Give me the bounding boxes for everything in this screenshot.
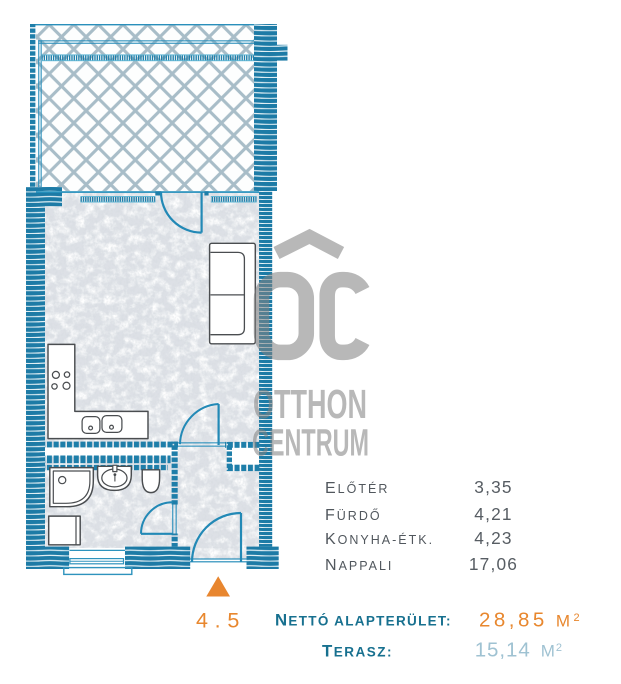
svg-text:28,85M2: 28,85M2 (479, 609, 583, 632)
svg-text:4,23: 4,23 (474, 528, 512, 548)
svg-text:17,06: 17,06 (469, 554, 518, 574)
svg-text:TERASZ:: TERASZ: (322, 642, 393, 661)
svg-text:NETTÓ ALAPTERÜLET:: NETTÓ ALAPTERÜLET: (275, 611, 452, 630)
svg-text:KONYHA-ÉTK.: KONYHA-ÉTK. (325, 531, 434, 548)
svg-text:4.5: 4.5 (196, 609, 246, 633)
svg-text:15,14M2: 15,14M2 (475, 639, 563, 662)
svg-text:NAPPALI: NAPPALI (325, 557, 393, 574)
svg-text:4,21: 4,21 (474, 504, 512, 524)
svg-text:OTTHON: OTTHON (253, 381, 367, 427)
svg-text:FÜRDŐ: FÜRDŐ (325, 507, 382, 524)
svg-text:CENTRUM: CENTRUM (252, 423, 369, 465)
svg-text:ELŐTÉR: ELŐTÉR (325, 480, 389, 497)
svg-text:3,35: 3,35 (474, 477, 512, 497)
